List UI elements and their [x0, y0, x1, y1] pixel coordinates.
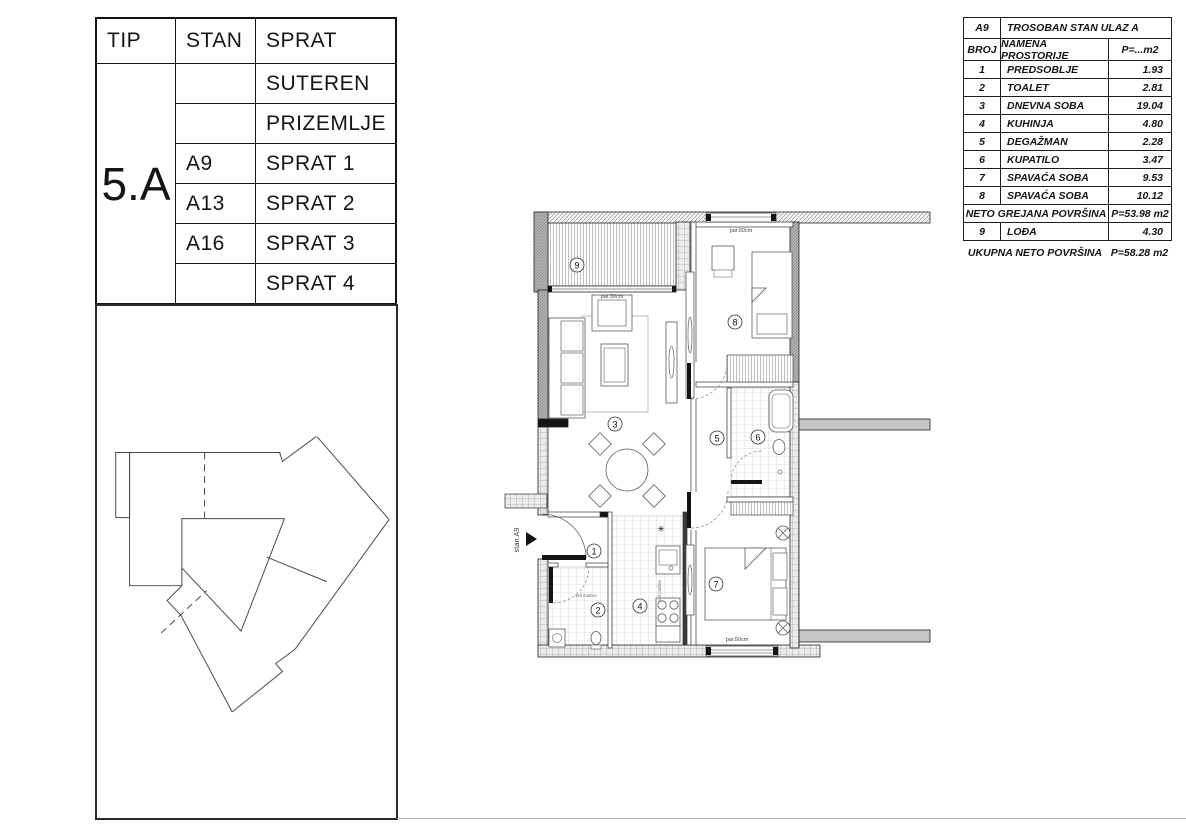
ukupna-label: UKUPNA NETO POVRŠINA	[963, 243, 1107, 263]
sprat-cell: SPRAT 2	[255, 183, 395, 223]
room-row-area: 9.53	[1108, 168, 1171, 186]
sofa-cushion	[561, 321, 583, 351]
bed-pillow	[773, 588, 787, 615]
lodja-num: 9	[964, 222, 1000, 240]
window-cap	[771, 214, 776, 221]
room-row-num: 5	[964, 132, 1000, 150]
room-number-bedroom2: 8	[732, 318, 737, 328]
entrance-landing	[505, 494, 547, 508]
room-number-bathroom: 6	[755, 433, 760, 443]
site-wing-tab	[116, 452, 130, 517]
bedroom2-window	[706, 213, 776, 222]
type-table-header-stan: STAN	[175, 19, 255, 63]
room-row-name: DEGAŽMAN	[1000, 132, 1108, 150]
room-row-num: 8	[964, 186, 1000, 204]
neto-grejana-value: P=53.98 m2	[1108, 204, 1171, 222]
ukupna-value: P=58.28 m2	[1107, 243, 1172, 263]
type-table-header-sprat: SPRAT	[255, 19, 395, 63]
room-schedule-table: A9 TROSOBAN STAN ULAZ A BROJ NAMENA PROS…	[963, 17, 1172, 241]
bedroom2-top-wall	[690, 222, 793, 227]
window-cap	[706, 647, 711, 655]
door-opening-bedroom1	[690, 492, 697, 530]
site-top-notch	[280, 437, 317, 462]
stan-cell	[175, 263, 255, 303]
sliding-panel	[666, 322, 677, 403]
site-court-triangle	[182, 519, 285, 631]
parapet-label-bottom-window: par.50cm	[726, 637, 749, 643]
room-number-living: 3	[612, 420, 617, 430]
loggia-decking	[548, 222, 676, 286]
dining-chair	[589, 485, 612, 508]
site-right-edge	[232, 520, 389, 712]
vent-star-icon: ✳	[657, 524, 665, 534]
ukupna-row: UKUPNA NETO POVRŠINA P=58.28 m2	[963, 243, 1172, 263]
stan-cell: A13	[175, 183, 255, 223]
room-row-area: 1.93	[1108, 60, 1171, 78]
dining-chair	[643, 485, 666, 508]
room-number-loggia: 9	[574, 261, 579, 271]
sheet-bottom-line	[397, 818, 1186, 819]
site-plan-box	[95, 304, 398, 820]
left-wall-pier	[538, 419, 568, 427]
col-header-broj: BROJ	[964, 38, 1000, 60]
sprat-cell: SUTEREN	[255, 63, 395, 103]
room-row-name: SPAVAĆA SOBA	[1000, 186, 1108, 204]
type-table-header-tip: TIP	[97, 19, 175, 63]
dishwasher-label: sud mašina	[657, 580, 662, 602]
lodja-area: 4.30	[1108, 222, 1171, 240]
stan-cell: A16	[175, 223, 255, 263]
kitchen-sink-basin	[659, 550, 677, 565]
bed-pillow	[773, 553, 787, 580]
balcony-column	[534, 212, 548, 292]
coffee-table-top	[604, 348, 625, 382]
room-row-num: 3	[964, 96, 1000, 114]
floor-plan-drawing: 1 2 3 4 5 6 7 8 9 stan A9 par.30cm par.6…	[500, 205, 936, 665]
bathroom-door-leaf	[731, 480, 762, 484]
room-row-area: 4.80	[1108, 114, 1171, 132]
hall-kitchen-wall	[608, 512, 612, 648]
room-row-num: 6	[964, 150, 1000, 168]
dining-table	[606, 449, 648, 491]
site-inner-corner	[182, 519, 285, 586]
hall-top-wall-cap	[600, 512, 608, 517]
left-wall-upper	[538, 290, 548, 419]
sprat-cell: SPRAT 4	[255, 263, 395, 303]
room-row-area: 2.28	[1108, 132, 1171, 150]
left-wall-lower	[538, 559, 548, 648]
room-number-corridor: 5	[714, 434, 719, 444]
parapet-label-balcony: par.30cm	[601, 294, 624, 300]
entrance-door-leaf	[542, 555, 586, 560]
desk-chair	[714, 270, 732, 277]
party-wall-stub-bottom	[790, 630, 930, 642]
room-row-area: 10.12	[1108, 186, 1171, 204]
site-plan-outline	[116, 437, 389, 712]
dining-chair	[643, 433, 666, 456]
room-number-bedroom1: 7	[713, 580, 718, 590]
armchair-seat	[598, 300, 626, 326]
room-row-num: 4	[964, 114, 1000, 132]
bathroom-left-wall	[727, 388, 731, 458]
room-row-name: KUPATILO	[1000, 150, 1108, 168]
sofa-cushion	[561, 353, 583, 383]
col-header-area: P=...m2	[1108, 38, 1171, 60]
kitchen-counter	[656, 626, 680, 642]
window-cap	[706, 214, 711, 221]
bedroom1-door-leaf	[687, 492, 691, 528]
room-row-num: 1	[964, 60, 1000, 78]
room-number-toilet: 2	[595, 606, 600, 616]
parapet-cap	[548, 286, 552, 292]
neto-grejana-label: NETO GREJANA POVRŠINA	[964, 204, 1108, 222]
site-plan-drawing	[97, 306, 396, 818]
room-row-name: PREDSOBLJE	[1000, 60, 1108, 78]
room-row-area: 3.47	[1108, 150, 1171, 168]
entrance-door-swing	[542, 514, 586, 558]
toilet-wc	[591, 632, 601, 645]
desk	[712, 246, 734, 270]
room-row-num: 2	[964, 78, 1000, 96]
parapet-label-top-window: par.60cm	[730, 228, 753, 234]
toilet-bathroom	[773, 440, 785, 455]
unit-entrance-label: stan A9	[512, 527, 521, 552]
unit-id: A9	[964, 18, 1000, 38]
room-row-name: DNEVNA SOBA	[1000, 96, 1108, 114]
site-plan-dashed	[161, 452, 206, 633]
type-table-tip-value: 5.A	[97, 63, 175, 303]
wardrobe-bedroom1	[731, 502, 793, 515]
site-connector-line	[267, 557, 327, 582]
site-wing-diagonal	[317, 437, 389, 520]
party-wall-stub-mid	[790, 419, 930, 430]
hall-toilet-wall-a	[548, 563, 558, 567]
washing-machine	[549, 629, 565, 647]
window-cap	[773, 647, 778, 655]
washer-label: veš mašina	[575, 593, 597, 598]
stan-cell	[175, 63, 255, 103]
room-row-num: 7	[964, 168, 1000, 186]
corridor-top-wall	[696, 382, 793, 387]
hall-toilet-wall-b	[586, 563, 608, 567]
wardrobe-bedroom2	[727, 355, 793, 382]
parapet-cap	[672, 286, 676, 292]
floor-plan: 1 2 3 4 5 6 7 8 9 stan A9 par.30cm par.6…	[500, 205, 936, 665]
room-number-hall: 1	[591, 547, 596, 557]
entrance-arrow-icon	[526, 532, 537, 546]
sprat-cell: SPRAT 3	[255, 223, 395, 263]
dining-chair	[589, 433, 612, 456]
room-row-area: 2.81	[1108, 78, 1171, 96]
sprat-cell: SPRAT 1	[255, 143, 395, 183]
toilet-tank	[591, 645, 601, 649]
room-row-name: KUHINJA	[1000, 114, 1108, 132]
room-row-name: TOALET	[1000, 78, 1108, 96]
living-door-leaf	[687, 363, 691, 399]
radiator-cross	[778, 623, 788, 633]
col-header-namena: NAMENA PROSTORIJE	[1000, 38, 1108, 60]
toilet-door-leaf	[549, 567, 553, 603]
sliding-panel	[686, 545, 694, 615]
sprat-cell: PRIZEMLJE	[255, 103, 395, 143]
room-number-kitchen: 4	[637, 602, 642, 612]
unit-title: TROSOBAN STAN ULAZ A	[1000, 18, 1171, 38]
stan-cell: A9	[175, 143, 255, 183]
stan-cell	[175, 103, 255, 143]
room-row-name: SPAVAĆA SOBA	[1000, 168, 1108, 186]
lodja-name: LOĐA	[1000, 222, 1108, 240]
type-table: TIP STAN SPRAT 5.A SUTEREN PRIZEMLJE A9 …	[95, 17, 397, 305]
site-dashed-diagonal	[161, 591, 206, 633]
bed-pillow	[757, 314, 787, 334]
sofa-cushion	[561, 385, 583, 415]
radiator-cross	[778, 528, 788, 538]
room-row-area: 19.04	[1108, 96, 1171, 114]
bedroom1-window	[706, 646, 778, 656]
bathroom-bedroom-wall	[727, 497, 793, 502]
